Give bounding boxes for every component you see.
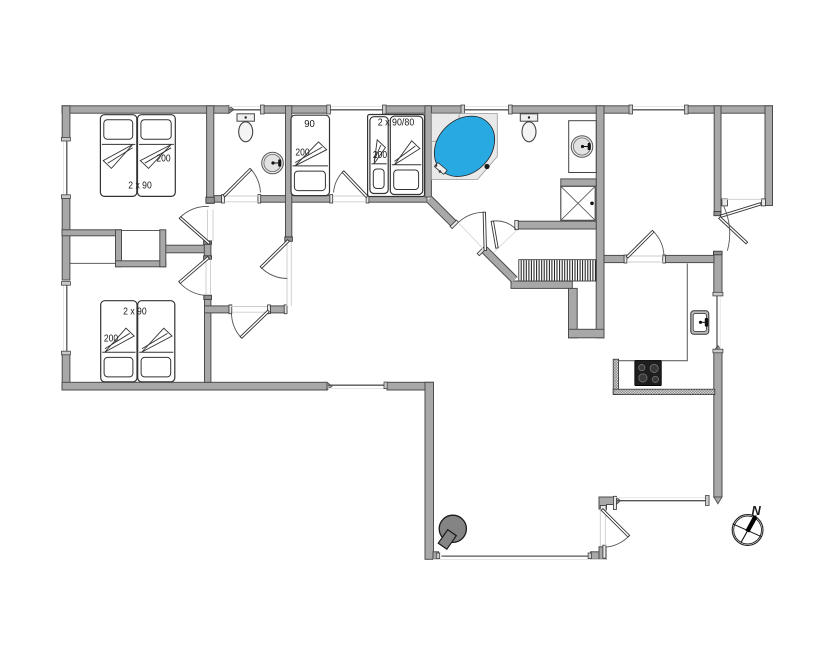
svg-text:2 x 90/80: 2 x 90/80 — [378, 118, 415, 129]
svg-text:90: 90 — [304, 119, 315, 130]
svg-text:200: 200 — [295, 147, 309, 158]
svg-text:200: 200 — [373, 150, 387, 161]
svg-text:N: N — [752, 503, 762, 518]
svg-text:2 x 90: 2 x 90 — [123, 307, 147, 318]
svg-text:200: 200 — [104, 334, 118, 345]
svg-text:200: 200 — [156, 153, 170, 164]
svg-text:2 x 90: 2 x 90 — [128, 180, 152, 191]
